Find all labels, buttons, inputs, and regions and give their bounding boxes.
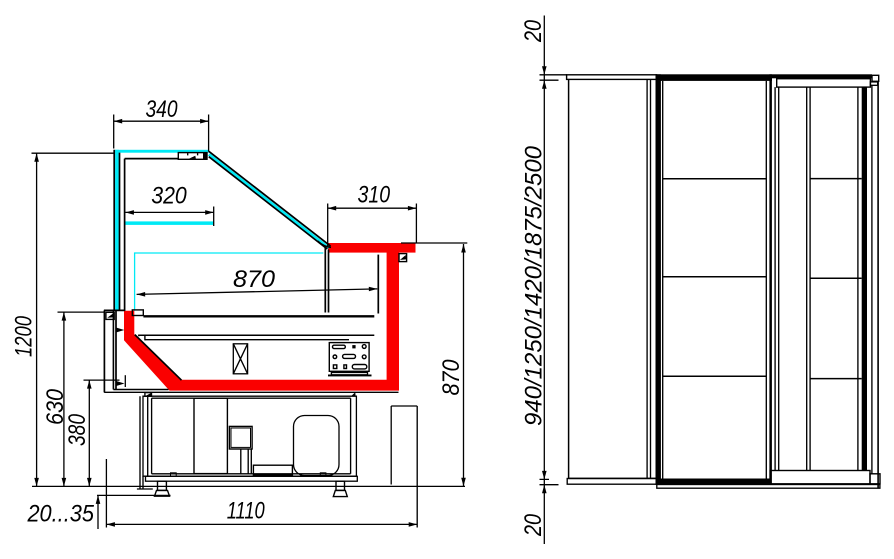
svg-text:870: 870 (438, 359, 465, 396)
svg-text:870: 870 (233, 266, 276, 293)
svg-text:1200: 1200 (11, 315, 38, 357)
svg-text:1110: 1110 (227, 498, 265, 525)
svg-text:20...35: 20...35 (27, 501, 95, 528)
svg-text:320: 320 (151, 182, 187, 209)
svg-text:310: 310 (358, 181, 391, 208)
svg-text:20: 20 (520, 513, 547, 536)
svg-text:380: 380 (64, 413, 91, 446)
svg-text:340: 340 (146, 96, 179, 123)
svg-text:940/1250/1420/1875/2500: 940/1250/1420/1875/2500 (521, 145, 548, 426)
svg-text:20: 20 (520, 19, 547, 42)
